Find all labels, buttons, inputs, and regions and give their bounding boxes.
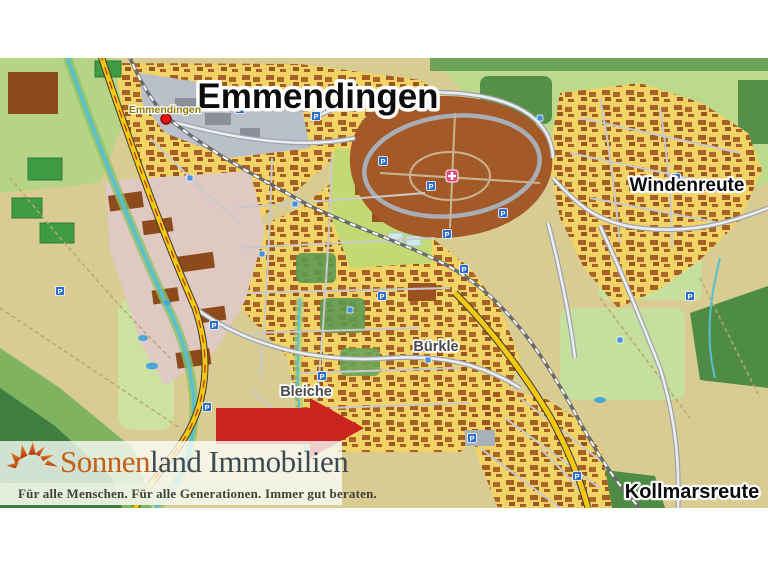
parking-icon: P bbox=[203, 403, 212, 412]
svg-text:P: P bbox=[444, 230, 449, 239]
sun-icon bbox=[4, 441, 60, 483]
district-label-windenreute: Windenreute bbox=[630, 175, 745, 196]
svg-text:P: P bbox=[379, 292, 384, 301]
bus-icon bbox=[537, 115, 543, 121]
parking-icon: P bbox=[318, 372, 327, 381]
parking-icon: P bbox=[210, 321, 219, 330]
parking-icon: P bbox=[686, 292, 695, 301]
district-label-buerkle: Bürkle bbox=[413, 339, 458, 355]
brand-rest: land Immobilien bbox=[150, 444, 348, 479]
svg-text:P: P bbox=[211, 321, 216, 330]
logo-band: Sonnenland Immobilien bbox=[0, 441, 342, 483]
parking-icon: P bbox=[468, 434, 477, 443]
svg-text:P: P bbox=[687, 292, 692, 301]
svg-text:P: P bbox=[204, 403, 209, 412]
svg-text:P: P bbox=[319, 372, 324, 381]
factory-building bbox=[8, 72, 58, 114]
brand-first: Sonnen bbox=[60, 444, 150, 479]
parking-icon: P bbox=[378, 292, 387, 301]
bus-icon bbox=[187, 175, 193, 181]
bus-icon bbox=[617, 337, 623, 343]
forest-top-band bbox=[430, 58, 768, 71]
svg-text:P: P bbox=[500, 209, 505, 218]
svg-text:P: P bbox=[469, 434, 474, 443]
bus-icon bbox=[347, 307, 353, 313]
parking-icon: P bbox=[573, 472, 582, 481]
parking-icon: P bbox=[56, 287, 65, 296]
station-label: Emmendingen bbox=[129, 104, 201, 116]
district-label-bleiche: Bleiche bbox=[280, 384, 332, 400]
svg-text:P: P bbox=[428, 182, 433, 191]
bus-icon bbox=[425, 357, 431, 363]
svg-text:P: P bbox=[461, 265, 466, 274]
hospital-icon bbox=[446, 170, 458, 182]
brand-tagline: Für alle Menschen. Für alle Generationen… bbox=[0, 486, 377, 502]
svg-text:P: P bbox=[380, 157, 385, 166]
parking-icon: P bbox=[379, 157, 388, 166]
sun-rays bbox=[6, 442, 57, 468]
parking-icon: P bbox=[499, 209, 508, 218]
parking-icon: P bbox=[443, 230, 452, 239]
real-estate-map-page: PPPPPPPPPPPPPPPPP Emmendingen Emmendinge… bbox=[0, 0, 768, 567]
district-label-kollmarsreute: Kollmarsreute bbox=[625, 481, 760, 503]
svg-text:P: P bbox=[574, 472, 579, 481]
city-title-label: Emmendingen bbox=[197, 77, 438, 116]
parking-icon: P bbox=[427, 182, 436, 191]
bus-icon bbox=[259, 251, 265, 257]
parking-icon: P bbox=[460, 265, 469, 274]
tagline-band: Für alle Menschen. Für alle Generationen… bbox=[0, 483, 342, 505]
brand-wordmark: Sonnenland Immobilien bbox=[60, 442, 348, 482]
bus-icon bbox=[292, 201, 298, 207]
svg-text:P: P bbox=[57, 287, 62, 296]
